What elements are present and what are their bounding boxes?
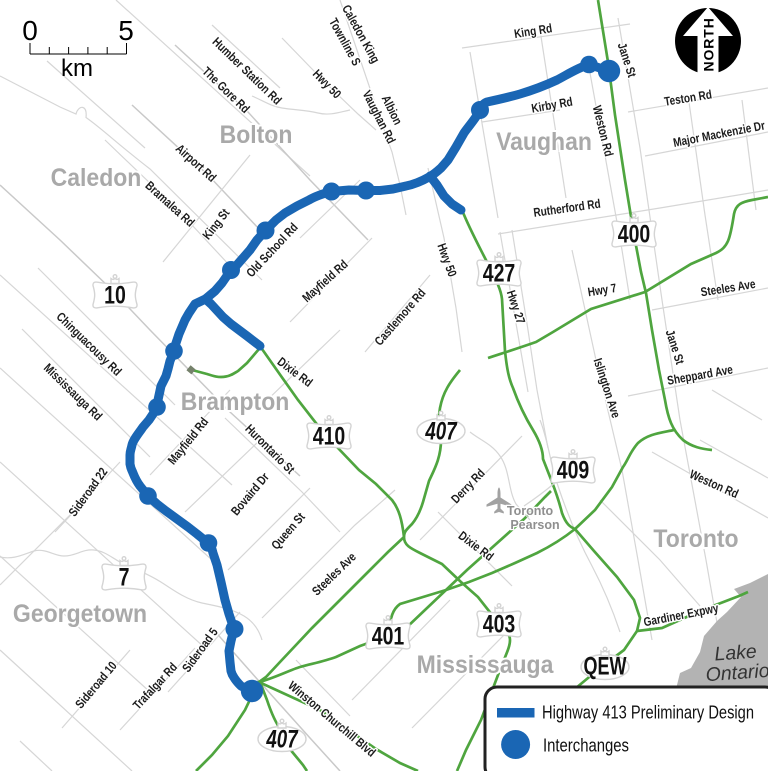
svg-text:Toronto: Toronto xyxy=(653,525,738,553)
svg-text:NORTH: NORTH xyxy=(701,17,717,71)
svg-text:km: km xyxy=(61,55,93,82)
svg-text:407: 407 xyxy=(425,417,459,445)
svg-text:5: 5 xyxy=(118,15,134,46)
svg-text:Ontario: Ontario xyxy=(705,660,768,686)
svg-text:0: 0 xyxy=(22,15,38,46)
svg-text:400: 400 xyxy=(618,220,651,248)
svg-text:Vaughan: Vaughan xyxy=(496,128,592,156)
svg-text:427: 427 xyxy=(483,259,516,287)
svg-text:Interchanges: Interchanges xyxy=(543,735,629,756)
svg-text:Brampton: Brampton xyxy=(181,388,290,416)
svg-text:409: 409 xyxy=(557,456,590,484)
svg-text:QEW: QEW xyxy=(584,652,627,681)
svg-text:7: 7 xyxy=(119,563,130,591)
svg-text:410: 410 xyxy=(313,422,346,450)
svg-text:407: 407 xyxy=(266,725,300,753)
svg-text:10: 10 xyxy=(104,281,126,309)
svg-text:401: 401 xyxy=(372,622,405,650)
svg-text:403: 403 xyxy=(483,610,516,638)
svg-text:Highway 413 Preliminary Design: Highway 413 Preliminary Design xyxy=(542,702,754,723)
svg-text:Mississauga: Mississauga xyxy=(417,651,554,679)
svg-text:Pearson: Pearson xyxy=(510,518,559,532)
svg-text:Bolton: Bolton xyxy=(220,121,293,149)
svg-text:Toronto: Toronto xyxy=(507,504,554,518)
svg-text:Georgetown: Georgetown xyxy=(13,600,147,628)
svg-text:Caledon: Caledon xyxy=(51,164,142,192)
